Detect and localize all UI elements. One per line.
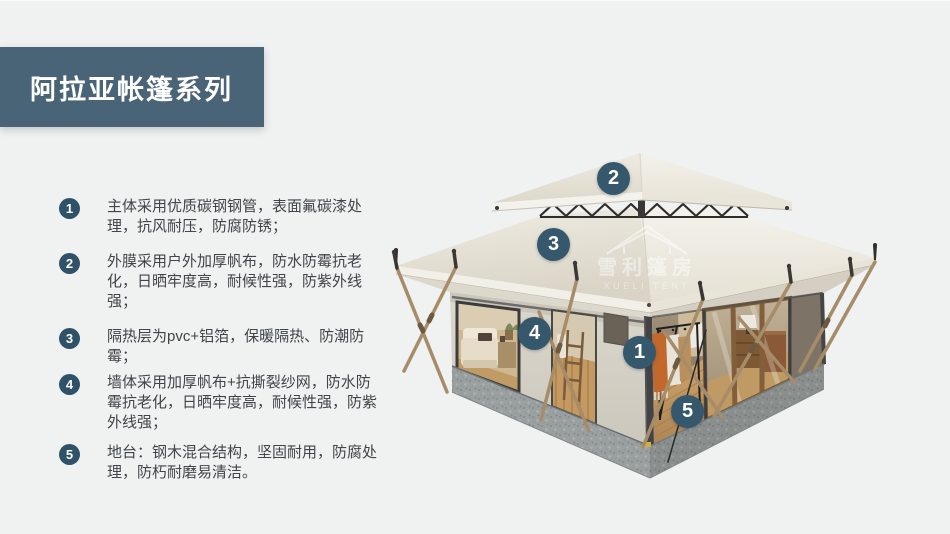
feature-item: 2 外膜采用户外加厚帆布，防水防霉抗老化，日晒牢度高，耐候性强，防紫外线强； [59, 252, 389, 312]
door-interior [552, 310, 596, 424]
feature-text: 隔热层为pvc+铝箔，保暖隔热、防潮防霉； [107, 327, 379, 367]
tent-callout-badge-3: 3 [537, 228, 570, 261]
tent-callout-badge-2: 2 [597, 162, 630, 195]
page-title: 阿拉亚帐篷系列 [30, 68, 233, 107]
feature-number-badge: 1 [59, 198, 80, 219]
title-banner: 阿拉亚帐篷系列 [0, 47, 264, 127]
tent-callout-badge-1: 1 [623, 336, 656, 369]
feature-text: 地台：钢木混合结构，坚固耐用，防腐处理，防朽耐磨易清洁。 [107, 443, 379, 483]
feature-number-badge: 2 [59, 253, 80, 274]
feature-item: 3 隔热层为pvc+铝箔，保暖隔热、防潮防霉； [59, 327, 389, 367]
feature-item: 1 主体采用优质碳钢钢管，表面氟碳漆处理，抗风耐压，防腐防锈； [59, 197, 389, 237]
watermark-en: XUELI TENT [604, 281, 691, 291]
feature-text: 外膜采用户外加厚帆布，防水防霉抗老化，日晒牢度高，耐候性强，防紫外线强； [107, 252, 379, 312]
feature-item: 5 地台：钢木混合结构，坚固耐用，防腐处理，防朽耐磨易清洁。 [59, 443, 389, 483]
feature-text: 主体采用优质碳钢钢管，表面氟碳漆处理，抗风耐压，防腐防锈； [107, 197, 379, 237]
feature-number-badge: 4 [59, 374, 80, 395]
watermark-zh: 雪利篷房 [597, 255, 697, 279]
tent-callout-badge-4: 4 [518, 317, 551, 350]
tent-callout-badge-5: 5 [671, 395, 704, 428]
feature-text: 墙体采用加厚帆布+抗撕裂纱网，防水防霉抗老化，日晒牢度高，耐候性强，防紫外线强； [107, 373, 379, 433]
feature-number-badge: 5 [59, 444, 80, 465]
slide-canvas: 雪利篷房 XUELI TENT [0, 0, 950, 534]
feature-list: 1 主体采用优质碳钢钢管，表面氟碳漆处理，抗风耐压，防腐防锈； 2 外膜采用户外… [59, 197, 389, 483]
feature-item: 4 墙体采用加厚帆布+抗撕裂纱网，防水防霉抗老化，日晒牢度高，耐候性强，防紫外线… [59, 373, 389, 433]
feature-number-badge: 3 [59, 328, 80, 349]
